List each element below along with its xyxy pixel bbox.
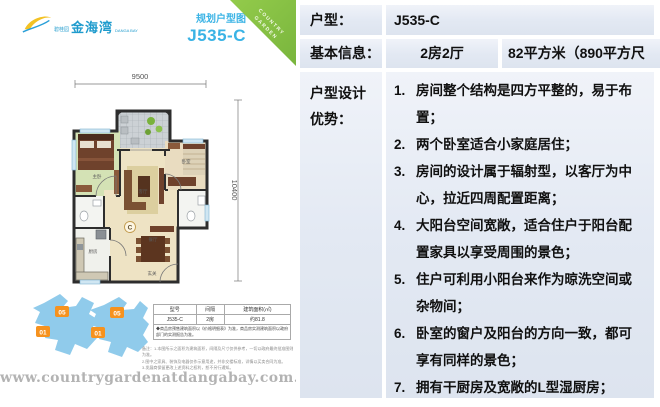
master-dresser [76,185,92,192]
unit-position-marker: C [125,222,136,233]
advantage-text: 拥有干厨房及宽敞的L型湿厨房； [416,374,640,398]
label-living: 客厅 [139,188,148,195]
spec-header-model: 型号 [154,305,197,315]
advantage-number: 7. [394,374,416,398]
spec-header-area: 建筑面积(㎡) [224,305,290,315]
advantage-number: 5. [394,266,416,320]
advantage-text: 房间的设计属于辐射型，以客厅为中心，拉近四周配置距离； [416,158,640,212]
label-bedroom: 卧室 [182,158,191,165]
advantage-text: 大阳台空间宽敞，适合住户于阳台配置家具以享受周围的景色； [416,212,640,266]
design-advantages-list: 1. 房间整个结构是四方平整的，易于布置； 2. 两个卧室适合小家庭居住； 3.… [386,72,654,398]
master-bed [78,134,114,170]
info-panel: 户型： J535-C 基本信息： 2房2厅 82平方米（890平方尺 户型设计 … [296,0,660,407]
unit-type-label: 户型： [300,5,382,35]
advantage-number: 3. [394,158,416,212]
spec-note: ◆商品房预售建筑面积以《价格明细表》为准，商品房实测建筑面积以政府部门的实测报告… [154,325,291,340]
advantage-number: 4. [394,212,416,266]
advantage-number: 2. [394,131,416,158]
spec-data-row: J535-C 2房 约81.8 [154,315,291,325]
siteplan: 05 01 05 01 [33,294,149,357]
master-wardrobe [114,170,119,194]
dimension-top-value: 9500 [132,72,149,81]
advantage-item: 4. 大阳台空间宽敞，适合住户于阳台配置家具以享受周围的景色； [394,212,648,266]
dimension-right-value: 10400 [230,180,239,201]
footnotes: 备注：1.本图所示之面积为建筑面积，间隔及尺寸仅供参考，一切以政府最终批准图则为… [142,346,296,372]
advantage-text: 卧室的窗户及阳台的方向一致，都可享有同样的景色； [416,320,640,374]
advantage-number: 6. [394,320,416,374]
basic-info-rooms: 2房2厅 [386,39,498,68]
spec-header-row: 型号 间隔 建筑面积(㎡) [154,305,291,315]
footnote-line1: 备注：1.本图所示之面积为建筑面积，间隔及尺寸仅供参考，一切以政府最终批准图则为… [142,346,296,359]
advantage-item: 5. 住户可利用小阳台来作为晾洗空间或杂物间； [394,266,648,320]
basic-info-label: 基本信息： [300,39,382,68]
unit-type-value: J535-C [386,5,654,35]
design-advantages-label: 户型设计 优势： [300,72,382,398]
label-foyer: 玄关 [148,270,157,277]
siteplan-building-left [33,294,97,355]
watermark-url: www.countrygardenatdangabay.com.my [0,370,296,386]
spec-note-row: ◆商品房预售建筑面积以《价格明细表》为准，商品房实测建筑面积以政府部门的实测报告… [154,325,291,340]
label-kitchen: 厨房 [89,248,98,255]
unit-spec-table: 型号 间隔 建筑面积(㎡) J535-C 2房 约81.8 ◆商品房预售建筑面积… [153,304,291,340]
design-advantages-label-line2: 优势： [310,106,382,132]
label-master: 主卧 [93,173,102,180]
design-advantages-label-line1: 户型设计 [310,80,382,106]
floorplan-panel: 碧桂园 金海湾 DANGA BAY 规划户型图 J535-C COUNTRY G… [0,0,296,407]
siteplan-marker-05b: 05 [113,311,121,318]
dimension-right: 10400 [230,100,242,281]
siteplan-marker-01a: 01 [39,330,47,337]
advantage-item: 6. 卧室的窗户及阳台的方向一致，都可享有同样的景色； [394,320,648,374]
advantage-text: 住户可利用小阳台来作为晾洗空间或杂物间； [416,266,640,320]
dimension-top: 9500 [75,72,206,88]
spec-header-layout: 间隔 [196,305,224,315]
spec-layout: 2房 [196,315,224,325]
spec-area: 约81.8 [224,315,290,325]
siteplan-marker-01b: 01 [94,331,102,338]
basic-info-area: 82平方米（890平方尺 [502,39,660,68]
siteplan-marker-05a: 05 [58,310,66,317]
advantage-text: 两个卧室适合小家庭居住； [416,131,640,158]
label-dining: 餐厅 [149,236,158,243]
advantage-item: 2. 两个卧室适合小家庭居住； [394,131,648,158]
advantage-number: 1. [394,77,416,131]
brochure-page: { "left_panel": { "logo": { "brand_small… [0,0,660,407]
advantage-item: 3. 房间的设计属于辐射型，以客厅为中心，拉近四周配置距离； [394,158,648,212]
advantage-item: 7. 拥有干厨房及宽敞的L型湿厨房； [394,374,648,398]
advantage-item: 1. 房间整个结构是四方平整的，易于布置； [394,77,648,131]
advantage-text: 房间整个结构是四方平整的，易于布置； [416,77,640,131]
spec-model: J535-C [154,315,197,325]
unit-position-letter: C [128,225,133,232]
